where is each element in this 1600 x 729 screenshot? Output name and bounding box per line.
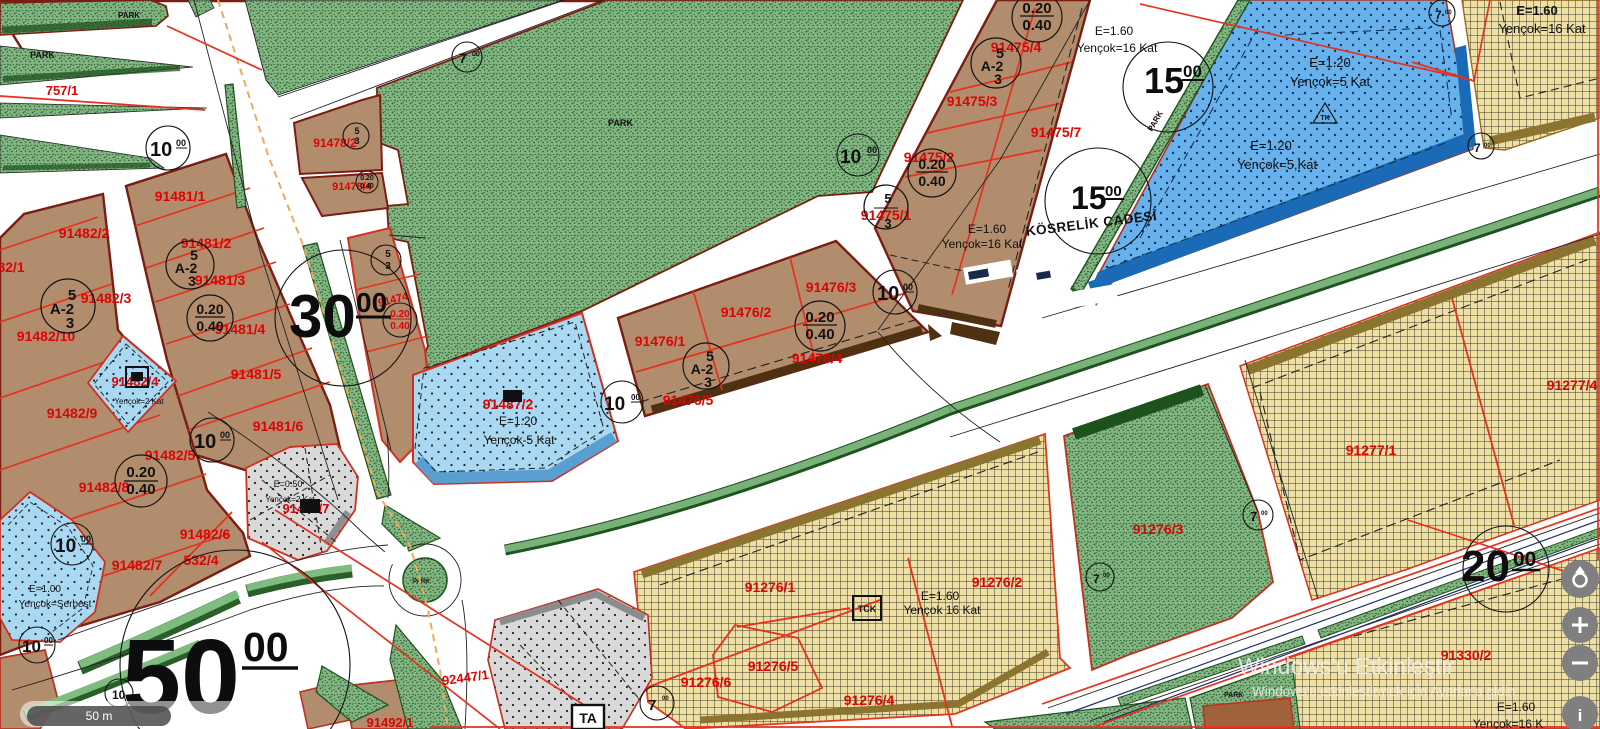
- svg-text:00: 00: [631, 393, 640, 402]
- svg-text:91482/9: 91482/9: [47, 405, 98, 421]
- svg-text:E=1.60: E=1.60: [1516, 3, 1558, 18]
- svg-text:91482/6: 91482/6: [180, 526, 231, 542]
- svg-text:TA: TA: [579, 710, 597, 726]
- svg-text:91277/4: 91277/4: [1547, 377, 1598, 393]
- svg-text:91482/5: 91482/5: [145, 447, 196, 463]
- svg-text:Yençok=5 Kat: Yençok=5 Kat: [1290, 74, 1371, 89]
- svg-text:0.40: 0.40: [360, 183, 374, 190]
- svg-text:00: 00: [1484, 143, 1491, 149]
- svg-text:0.40: 0.40: [126, 481, 155, 498]
- svg-text:00: 00: [176, 138, 186, 148]
- svg-text:PARK: PARK: [413, 579, 430, 585]
- svg-text:E=0.50: E=0.50: [274, 479, 303, 489]
- svg-text:91276/5: 91276/5: [748, 658, 799, 674]
- svg-text:0.40: 0.40: [196, 318, 223, 334]
- svg-text:7: 7: [459, 50, 467, 66]
- svg-text:Yençok=16 Kat: Yençok=16 Kat: [1498, 21, 1586, 36]
- svg-text:91276/2: 91276/2: [972, 574, 1023, 590]
- svg-text:3: 3: [354, 136, 359, 146]
- svg-text:00: 00: [44, 636, 53, 645]
- svg-text:7: 7: [1474, 141, 1481, 155]
- svg-text:00: 00: [81, 534, 91, 544]
- svg-text:91276/4: 91276/4: [844, 692, 895, 708]
- svg-text:91482/7: 91482/7: [112, 557, 163, 573]
- svg-text:00: 00: [1103, 573, 1110, 579]
- svg-text:20: 20: [1461, 542, 1510, 591]
- svg-text:91482/8: 91482/8: [79, 479, 130, 495]
- svg-text:0.40: 0.40: [390, 321, 410, 332]
- svg-text:00: 00: [472, 51, 480, 58]
- svg-text:i: i: [1578, 706, 1583, 725]
- svg-text:0.40: 0.40: [805, 326, 834, 343]
- svg-text:91482/2: 91482/2: [59, 225, 110, 241]
- svg-text:00: 00: [1105, 183, 1122, 200]
- svg-text:00: 00: [1261, 511, 1268, 517]
- svg-text:3: 3: [704, 374, 712, 390]
- svg-text:Windows'u Etkinleştir: Windows'u Etkinleştir: [1238, 653, 1455, 679]
- svg-text:10: 10: [55, 536, 76, 557]
- svg-text:3: 3: [884, 216, 891, 231]
- svg-text:0.40: 0.40: [918, 173, 945, 189]
- svg-text:0.20: 0.20: [360, 175, 374, 182]
- svg-text:91476/2: 91476/2: [721, 304, 772, 320]
- svg-text:7: 7: [1250, 509, 1257, 524]
- svg-text:91481/5: 91481/5: [231, 366, 282, 382]
- svg-text:3: 3: [66, 315, 74, 332]
- svg-text:15: 15: [1071, 180, 1107, 216]
- svg-text:Yençok=5,Kat: Yençok=5,Kat: [1237, 157, 1318, 172]
- svg-text:10: 10: [22, 637, 41, 656]
- svg-text:91482/3: 91482/3: [81, 290, 132, 306]
- svg-text:15: 15: [1144, 60, 1184, 101]
- svg-text:0.40: 0.40: [1022, 17, 1051, 34]
- svg-text:0.20: 0.20: [1022, 0, 1051, 17]
- svg-text:00: 00: [1183, 62, 1202, 81]
- svg-text:91476/4: 91476/4: [792, 350, 843, 366]
- svg-text:00: 00: [220, 430, 230, 440]
- svg-text:PARK: PARK: [608, 118, 633, 128]
- svg-text:0.20: 0.20: [126, 464, 155, 481]
- svg-text:91475/3: 91475/3: [947, 93, 998, 109]
- svg-text:50 m: 50 m: [86, 709, 113, 723]
- svg-text:0.20: 0.20: [918, 156, 945, 172]
- svg-text:00: 00: [903, 282, 913, 292]
- svg-text:5: 5: [884, 191, 891, 206]
- svg-text:Yençok=Serbest: Yençok=Serbest: [19, 599, 92, 610]
- svg-text:7: 7: [1435, 8, 1442, 22]
- svg-text:5: 5: [354, 126, 359, 136]
- svg-text:91482/1: 91482/1: [0, 259, 25, 275]
- svg-text:10: 10: [194, 431, 216, 453]
- svg-text:91476/1: 91476/1: [635, 333, 686, 349]
- svg-text:91492/1: 91492/1: [367, 715, 414, 729]
- svg-text:3: 3: [994, 71, 1002, 87]
- svg-text:10: 10: [150, 139, 172, 161]
- svg-text:PARK: PARK: [30, 50, 55, 60]
- svg-text:00: 00: [1513, 548, 1536, 571]
- svg-text:TCK: TCK: [858, 604, 877, 614]
- svg-text:10: 10: [604, 394, 625, 415]
- svg-text:5: 5: [385, 249, 391, 260]
- svg-text:PARK: PARK: [1224, 692, 1243, 699]
- svg-text:Yençok=16 Kat: Yençok=16 Kat: [942, 237, 1023, 251]
- svg-text:91276/1: 91276/1: [745, 579, 796, 595]
- svg-text:91276/3: 91276/3: [1133, 521, 1184, 537]
- svg-text:00: 00: [1445, 10, 1452, 16]
- svg-text:TK: TK: [1320, 115, 1329, 122]
- svg-text:91481/2: 91481/2: [181, 235, 232, 251]
- svg-text:Yençok 16 Kat: Yençok 16 Kat: [904, 603, 982, 617]
- svg-text:91276/6: 91276/6: [681, 674, 732, 690]
- svg-text:757/1: 757/1: [46, 83, 79, 98]
- svg-text:00: 00: [867, 145, 877, 155]
- svg-text:0.20: 0.20: [196, 301, 223, 317]
- svg-text:30: 30: [289, 283, 356, 350]
- svg-text:7: 7: [1093, 572, 1100, 586]
- svg-text:Windows'u etkinleştirmek için: Windows'u etkinleştirmek için Ayarlar'a …: [1252, 684, 1519, 699]
- svg-text:0.20: 0.20: [805, 309, 834, 326]
- svg-text:E=1.60: E=1.60: [968, 222, 1007, 236]
- svg-text:10: 10: [840, 147, 861, 168]
- svg-text:10: 10: [877, 283, 899, 305]
- svg-text:91475/7: 91475/7: [1031, 124, 1082, 140]
- svg-text:91481/6: 91481/6: [253, 418, 304, 434]
- svg-text:E=1.60: E=1.60: [1095, 24, 1134, 38]
- svg-text:91481/1: 91481/1: [155, 188, 206, 204]
- svg-text:E=1.00: E=1.00: [29, 584, 61, 595]
- svg-text:Yençok=2 Kat: Yençok=2 Kat: [114, 397, 164, 406]
- svg-text:E=1.60: E=1.60: [921, 589, 960, 603]
- svg-text:PARK: PARK: [118, 11, 140, 20]
- svg-text:00: 00: [243, 624, 289, 670]
- svg-text:Yençok-5 Kat: Yençok-5 Kat: [484, 433, 556, 447]
- svg-text:91277/1: 91277/1: [1346, 442, 1397, 458]
- svg-text:E=1.20: E=1.20: [1309, 55, 1351, 70]
- svg-text:3: 3: [188, 273, 196, 289]
- svg-text:00: 00: [356, 287, 387, 318]
- svg-text:0.20: 0.20: [390, 309, 410, 320]
- svg-text:91476/3: 91476/3: [806, 279, 857, 295]
- svg-text:E=1.20: E=1.20: [499, 414, 538, 428]
- svg-text:7: 7: [648, 697, 656, 714]
- svg-text:E=1.20: E=1.20: [1250, 138, 1292, 153]
- svg-text:91476/5: 91476/5: [663, 392, 714, 408]
- svg-text:Yençok=16 K: Yençok=16 K: [1473, 717, 1544, 729]
- svg-text:E=1.60: E=1.60: [1497, 700, 1536, 714]
- svg-text:00: 00: [662, 696, 669, 702]
